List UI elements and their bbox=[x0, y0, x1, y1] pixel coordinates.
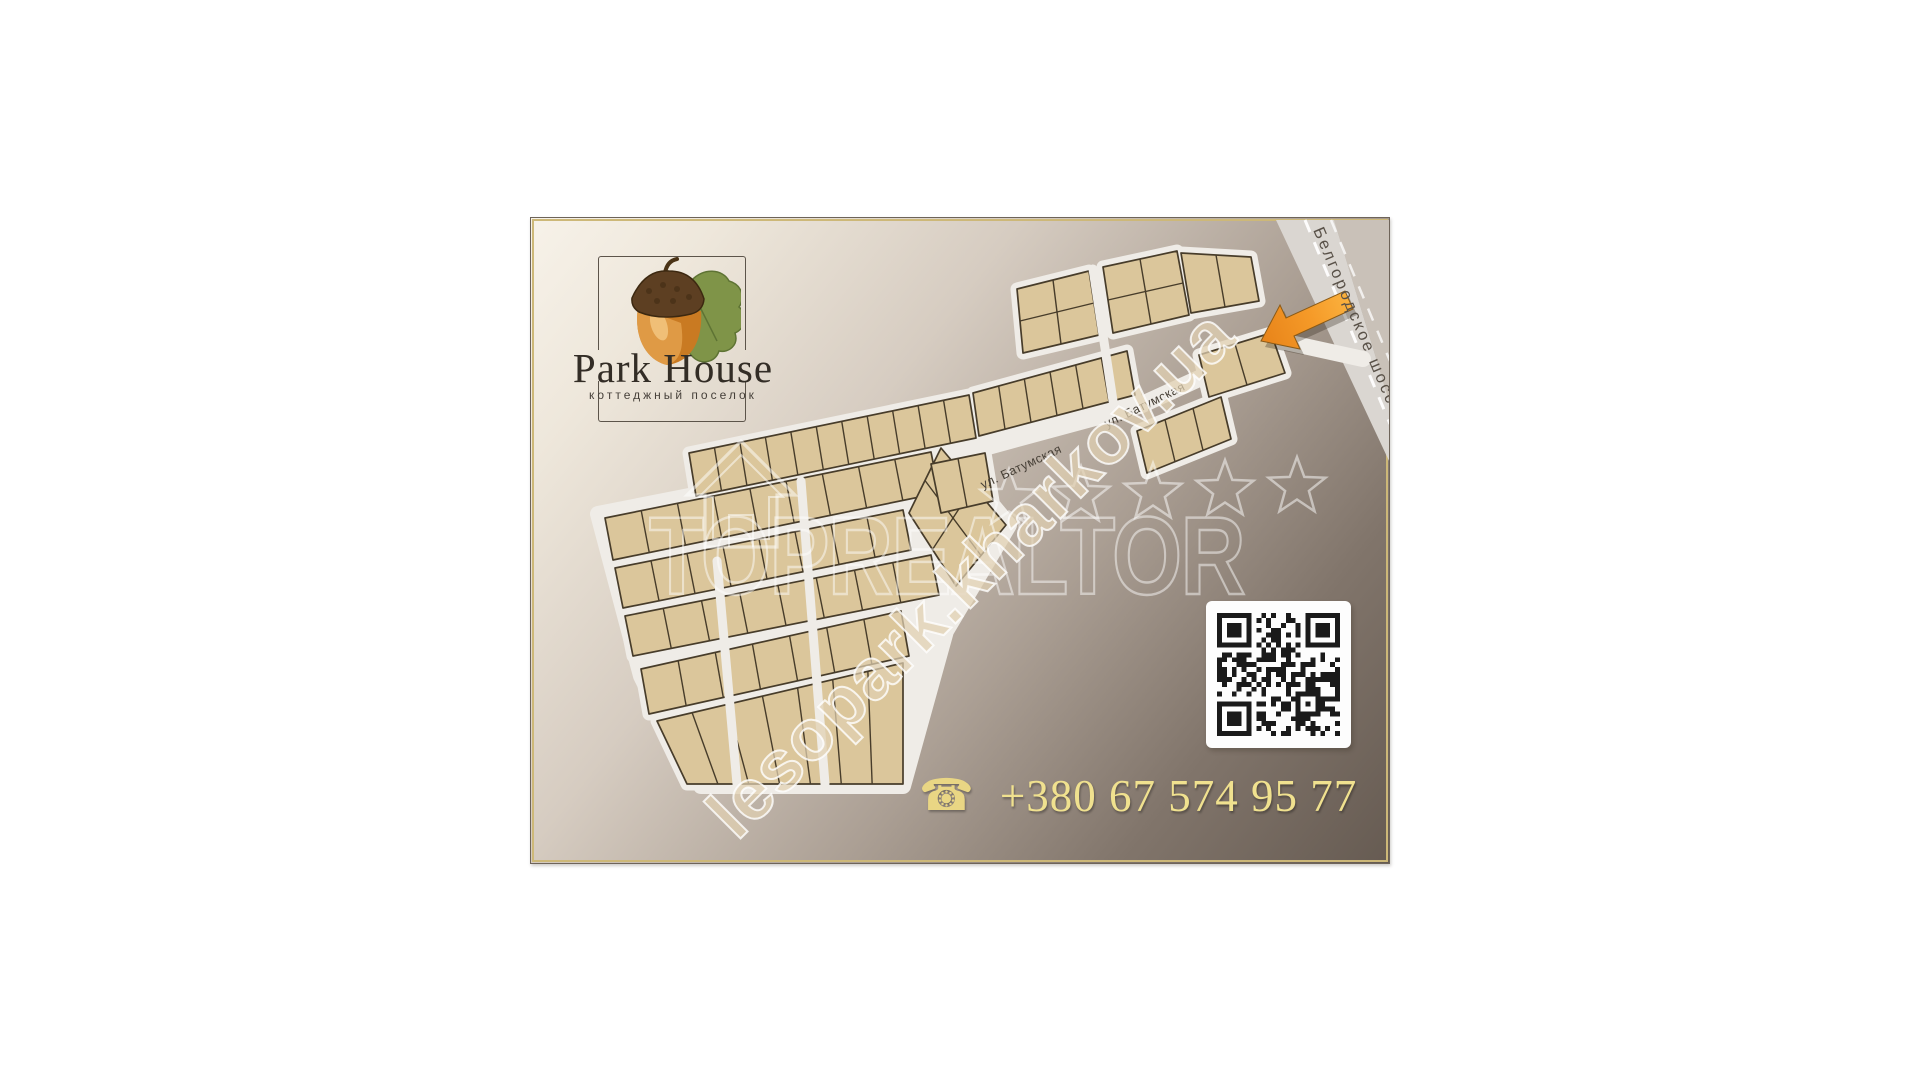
star-icon bbox=[1269, 457, 1326, 511]
brand-tagline: коттеджный поселок bbox=[513, 388, 833, 402]
phone-number: +380 67 574 95 77 bbox=[1000, 770, 1357, 822]
park-house-map-card: ул. Батумскаяул. БатумскаяБелгородское ш… bbox=[530, 217, 1390, 864]
telephone-icon: ☎ bbox=[919, 774, 974, 818]
qr-code bbox=[1206, 601, 1351, 748]
contact-phone-row: ☎ +380 67 574 95 77 bbox=[919, 770, 1357, 822]
brand-title: Park House bbox=[513, 344, 833, 392]
